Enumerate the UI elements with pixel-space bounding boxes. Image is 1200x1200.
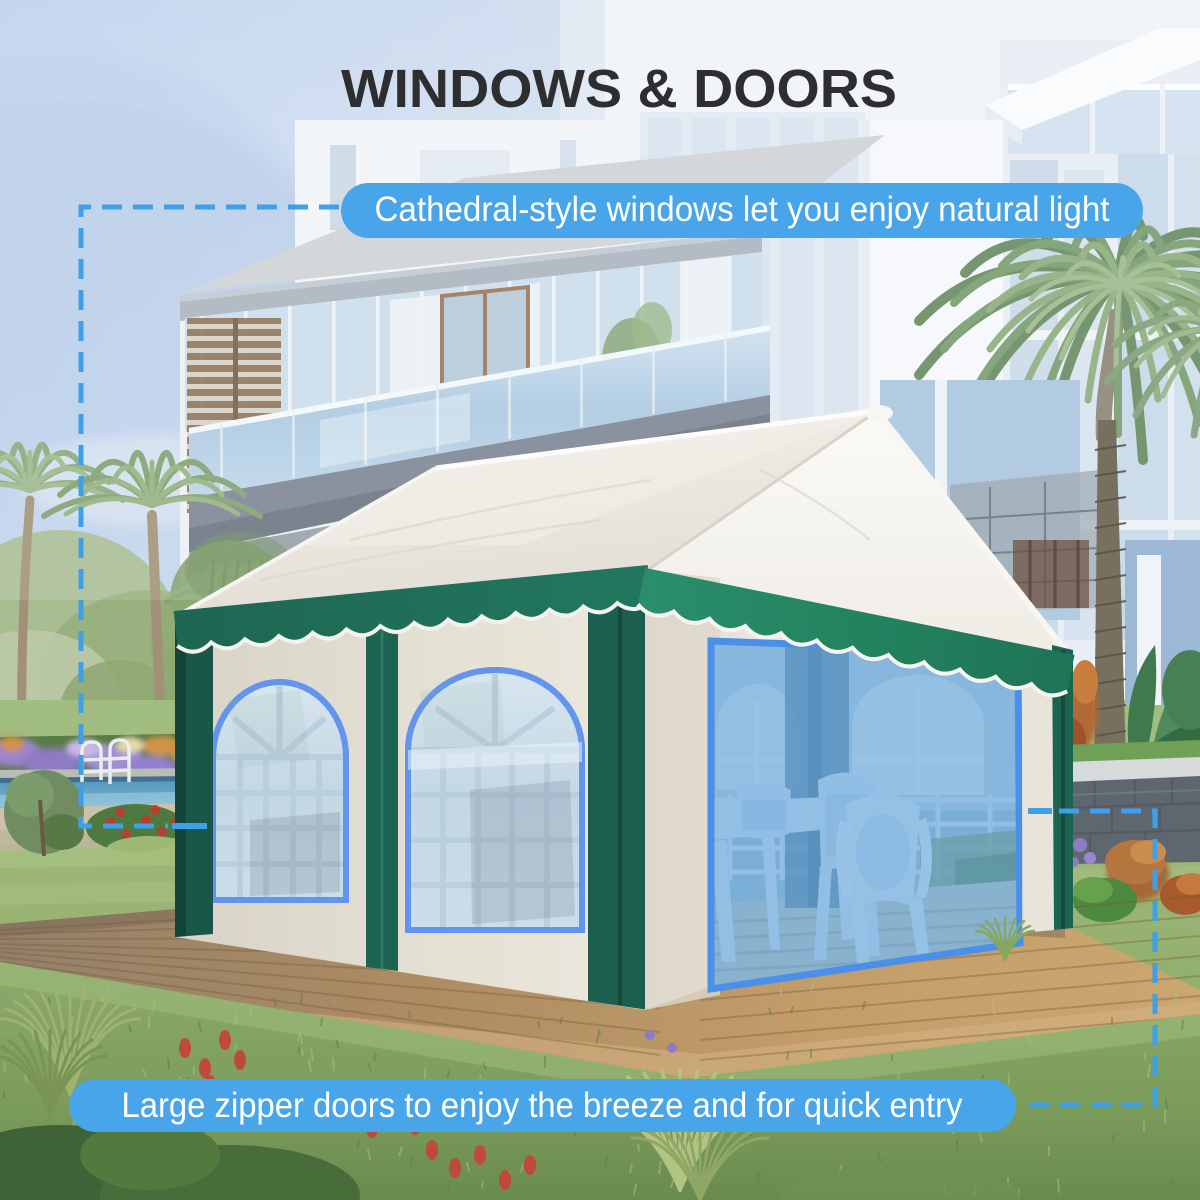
svg-text:WINDOWS & DOORS: WINDOWS & DOORS <box>341 59 897 119</box>
svg-text:Large zipper doors to enjoy th: Large zipper doors to enjoy the breeze a… <box>122 1086 963 1125</box>
svg-text:Cathedral-style windows let yo: Cathedral-style windows let you enjoy na… <box>375 190 1110 229</box>
